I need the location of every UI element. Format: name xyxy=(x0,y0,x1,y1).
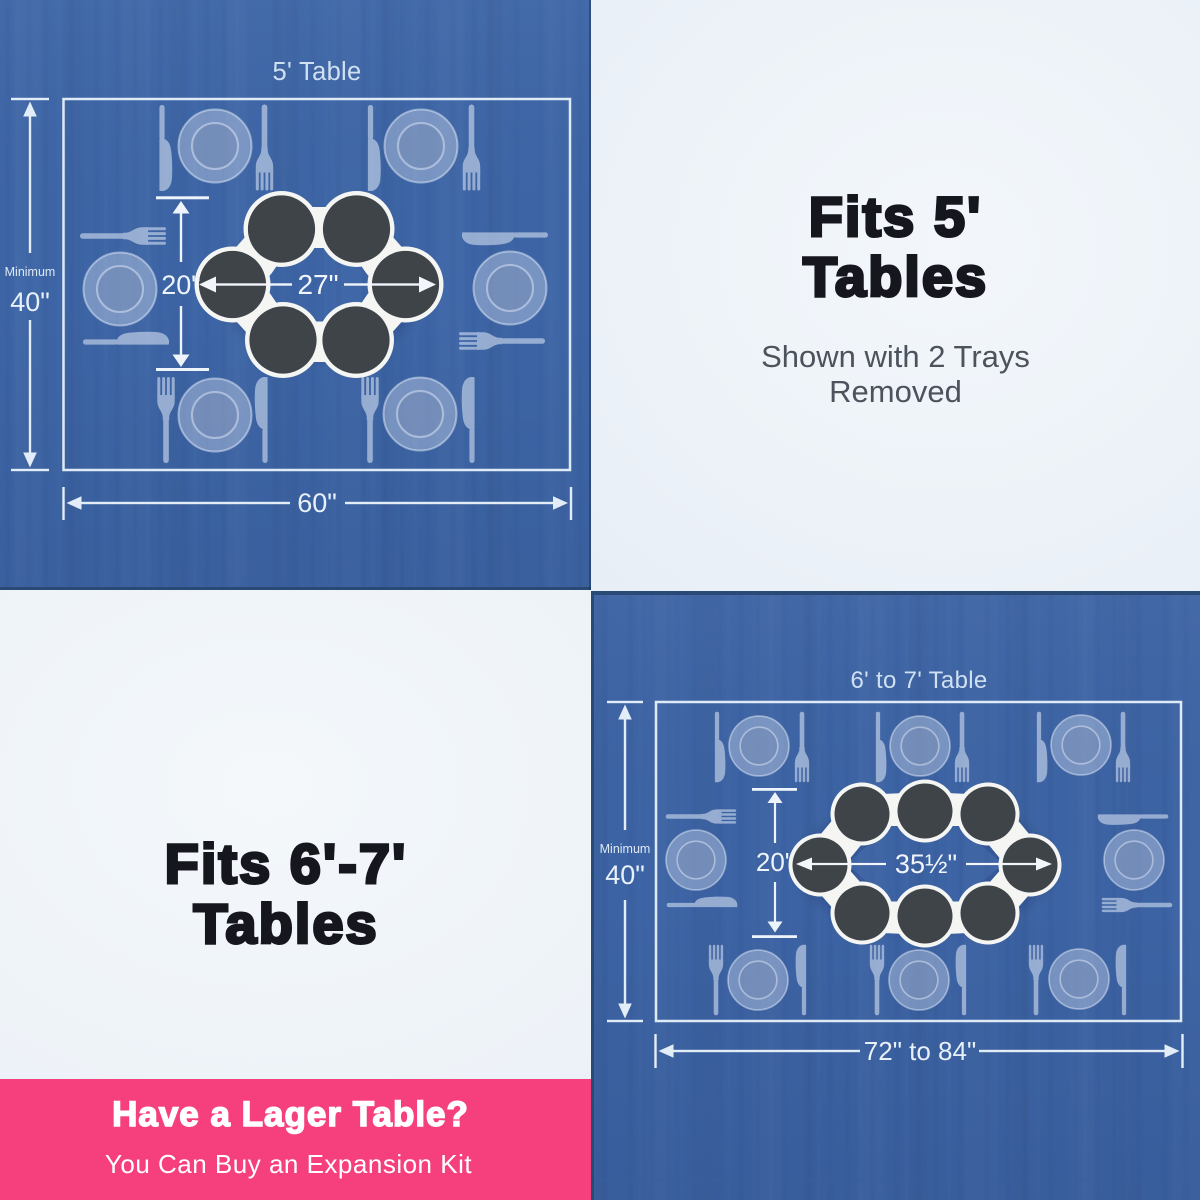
svg-text:35½": 35½" xyxy=(895,849,957,879)
svg-text:72" to 84": 72" to 84" xyxy=(864,1036,976,1066)
svg-text:6' to 7' Table: 6' to 7' Table xyxy=(850,667,987,694)
svg-text:27": 27" xyxy=(297,269,338,300)
svg-text:Minimum: Minimum xyxy=(5,265,56,279)
svg-text:40": 40" xyxy=(605,860,645,890)
svg-text:Minimum: Minimum xyxy=(600,842,651,856)
svg-text:60": 60" xyxy=(297,488,337,518)
svg-text:40": 40" xyxy=(10,287,50,317)
svg-text:20": 20" xyxy=(161,270,201,300)
svg-text:5' Table: 5' Table xyxy=(272,58,361,86)
svg-text:20": 20" xyxy=(756,847,794,877)
